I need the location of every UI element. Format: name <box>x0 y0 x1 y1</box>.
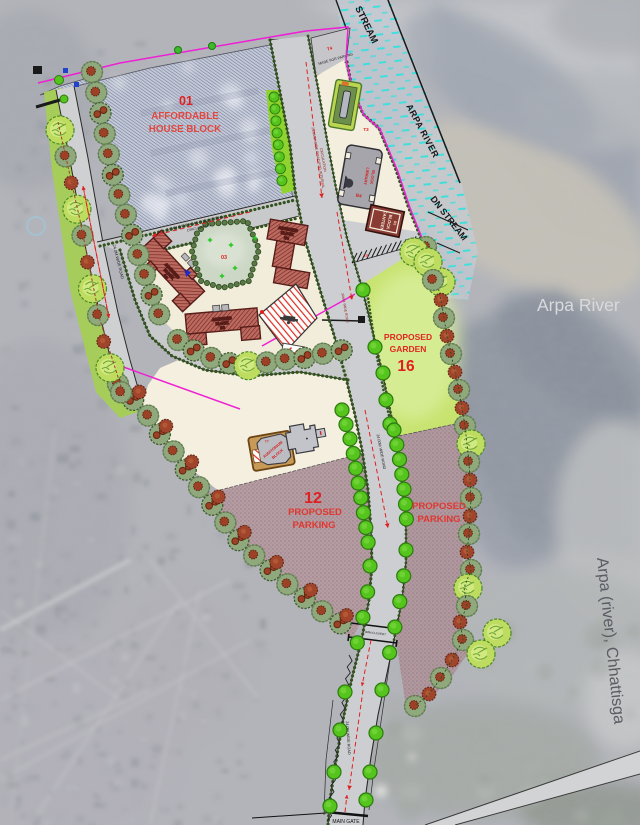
svg-text:HOUSE BLOCK: HOUSE BLOCK <box>149 124 221 135</box>
svg-text:01: 01 <box>179 94 193 108</box>
svg-text:T5: T5 <box>364 253 369 258</box>
svg-text:16: 16 <box>397 358 415 375</box>
svg-text:03: 03 <box>221 255 227 261</box>
svg-text:PROPOSED: PROPOSED <box>288 507 342 518</box>
svg-text:12: 12 <box>304 490 322 507</box>
svg-text:GARDEN: GARDEN <box>390 344 427 354</box>
svg-text:PROPOSED: PROPOSED <box>384 332 432 342</box>
svg-text:PARKING: PARKING <box>417 514 460 525</box>
svg-text:PARKING: PARKING <box>292 520 335 531</box>
svg-text:AFFORDABLE: AFFORDABLE <box>151 111 219 122</box>
svg-text:MAIN GATE: MAIN GATE <box>332 819 360 825</box>
svg-text:T3: T3 <box>363 127 369 132</box>
svg-text:B3: B3 <box>220 326 225 330</box>
svg-text:Arpa River: Arpa River <box>537 295 620 315</box>
svg-text:PROPOSED: PROPOSED <box>412 501 466 512</box>
svg-text:B4: B4 <box>284 236 289 241</box>
svg-text:T7: T7 <box>265 439 270 444</box>
